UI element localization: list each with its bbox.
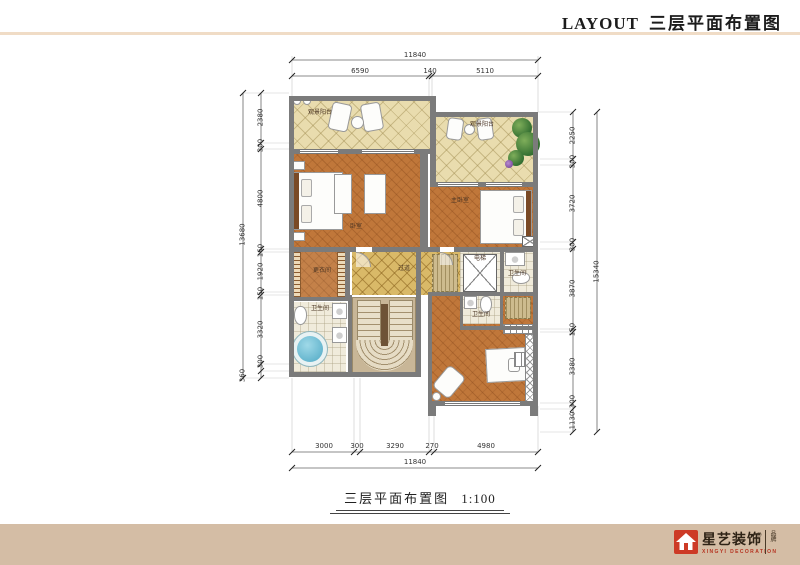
room-label-corridor: 过道 (386, 266, 422, 272)
dim-left-seg: 360 (240, 346, 247, 406)
caption-title: 三层平面布置图 (344, 491, 449, 506)
wall (420, 153, 428, 252)
room-label-bathroom-upper-right: 卫生间 (498, 271, 536, 277)
dim-bottom-total: 11840 (385, 459, 445, 466)
house-icon (674, 530, 698, 554)
dim-top-seg: 140 (415, 68, 445, 75)
caption-scale: 1:100 (461, 491, 496, 506)
dim-left-seg: 300 (258, 332, 265, 392)
cabinet-icon (364, 174, 386, 214)
sink-icon (464, 296, 477, 309)
wall (500, 294, 503, 326)
dim-right-total: 15340 (594, 242, 601, 302)
dim-left-total: 13680 (240, 205, 247, 265)
window-icon (300, 149, 338, 154)
dim-right-seg: 1130 (570, 391, 577, 451)
wall (289, 372, 421, 377)
stair-flight-left (357, 300, 381, 344)
window-icon (362, 149, 414, 154)
wall (430, 96, 436, 187)
bathtub-icon (292, 331, 328, 367)
wall (289, 297, 348, 301)
dim-top-total: 11840 (385, 52, 445, 59)
wall (530, 401, 538, 416)
logo-divider (765, 530, 766, 554)
room-label-bathroom-center: 卫生间 (462, 312, 500, 318)
sink-icon (505, 252, 525, 266)
plant-icon (505, 160, 513, 168)
staircase (352, 297, 416, 373)
room-label-balcony-right: 观景阳台 (460, 122, 504, 128)
dim-left-seg: 300 (258, 116, 265, 176)
brand-logo-icon (674, 530, 698, 554)
wall (428, 292, 432, 406)
lounge-chair-icon (446, 117, 465, 141)
stair-flight-right (389, 300, 413, 344)
room-label-bathroom-left: 卫生间 (300, 306, 340, 312)
wall (348, 295, 352, 377)
nightstand-icon (293, 232, 305, 241)
cabinet-icon (334, 174, 352, 214)
dim-bottom-seg: 270 (417, 443, 447, 450)
footer-bar: 星艺装饰 ® XINGYI DECORATION 品牌 (0, 524, 800, 565)
window-icon (486, 182, 522, 187)
round-table-icon (351, 116, 364, 129)
room-label-elevator: 电梯 (464, 256, 496, 262)
room-label-dressing: 更衣间 (302, 268, 342, 274)
caption-text: 三层平面布置图1:100 (336, 488, 504, 511)
wall (289, 96, 436, 101)
wall (428, 292, 538, 296)
floor-plan: 观景阳台 观景阳台 卧室 主卧室 更衣间 过道 卫生间 电梯 卫生间 卫生间 1… (0, 0, 800, 565)
wall (434, 112, 538, 117)
dim-left-seg: 4800 (258, 169, 265, 229)
nightstand-icon (293, 161, 305, 170)
stair-core (381, 304, 388, 346)
window-icon (445, 401, 520, 406)
wall (428, 401, 436, 416)
wall (533, 112, 538, 406)
caption-underline (330, 513, 510, 514)
room-label-bedroom-left: 卧室 (336, 224, 376, 230)
brand-vertical-text: 品牌 (769, 530, 775, 554)
sink-icon (332, 327, 347, 343)
desk-shelf-icon (514, 352, 525, 367)
caption: 三层平面布置图1:100 (330, 488, 510, 514)
wall (289, 96, 294, 377)
brand-name-zh: 星艺装饰 (702, 529, 762, 549)
dim-top-seg: 5110 (455, 68, 515, 75)
lounge-chair-icon (476, 117, 495, 141)
dim-top-seg: 6590 (330, 68, 390, 75)
wall (460, 294, 463, 326)
room-label-balcony-left: 观景阳台 (298, 110, 342, 116)
toilet-icon (480, 296, 492, 313)
dim-bottom-seg: 4980 (456, 443, 516, 450)
dim-bottom-seg: 3290 (366, 443, 424, 450)
brand-name-en: XINGYI DECORATION (702, 549, 777, 555)
wall (345, 251, 350, 298)
side-table-icon (432, 392, 441, 401)
wall (460, 326, 538, 330)
window-icon (438, 182, 478, 187)
bathroom-rug (505, 297, 531, 319)
room-label-bedroom-right: 主卧室 (438, 198, 482, 204)
page: LAYOUT三层平面布置图 (0, 0, 800, 565)
trademark-symbol: ® (757, 533, 761, 539)
